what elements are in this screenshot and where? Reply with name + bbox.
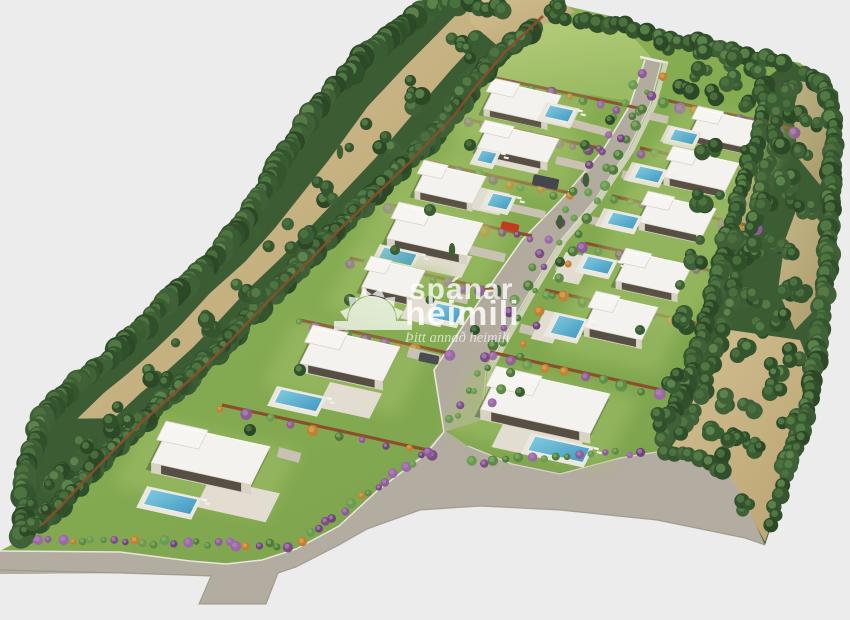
svg-text:Þitt annað heimili: Þitt annað heimili	[404, 330, 510, 346]
svg-text:heimili: heimili	[405, 295, 520, 333]
